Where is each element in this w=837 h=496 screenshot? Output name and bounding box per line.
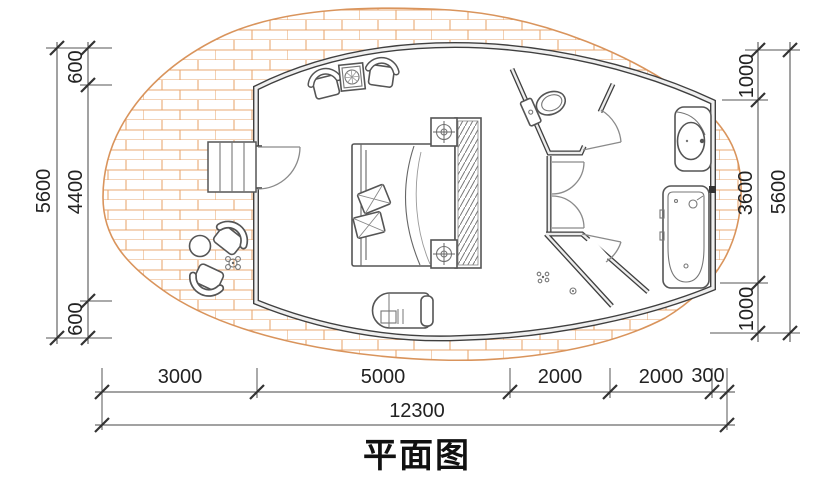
dim-right-seg1: 1000 [736,54,758,99]
drawing-title: 平面图 [363,437,471,475]
washbasin [675,107,711,171]
dim-bottom-seg5: 300 [691,365,724,387]
dim-bottom-overall: 12300 [389,400,445,422]
dim-left-overall: 5600 [33,169,55,214]
dim-right-seg3: 1000 [736,287,758,332]
floor-plan-page: 5600 600 4400 600 5600 1000 3600 1000 30… [0,0,837,496]
wardrobe [455,118,481,268]
floor-plan-drawing: 5600 600 4400 600 5600 1000 3600 1000 30… [0,0,837,496]
dimension-bottom: 3000 5000 2000 2000 300 12300 [95,365,735,432]
entry-stairs [208,142,256,192]
dim-left-seg1: 600 [65,50,87,83]
outdoor-round-table [190,236,211,257]
side-table [339,63,366,91]
wardrobe-hatch-icon [458,121,478,265]
dim-right-seg2: 3600 [735,171,757,216]
dimension-left: 5600 600 4400 600 [33,41,112,345]
chaise-lounge [373,293,434,328]
downlight-cabinet [431,118,457,146]
dim-bottom-seg1: 3000 [158,366,203,388]
dim-bottom-seg2: 5000 [361,366,406,388]
armchair [366,59,397,88]
downlight-cabinet [431,240,457,268]
dim-right-overall: 5600 [768,170,790,215]
wall-post [709,186,716,193]
dim-bottom-seg3: 2000 [538,366,583,388]
dim-left-seg2: 4400 [65,170,87,215]
dim-bottom-seg4: 2000 [639,366,684,388]
dim-left-seg3: 600 [65,302,87,335]
bathtub [660,186,709,288]
